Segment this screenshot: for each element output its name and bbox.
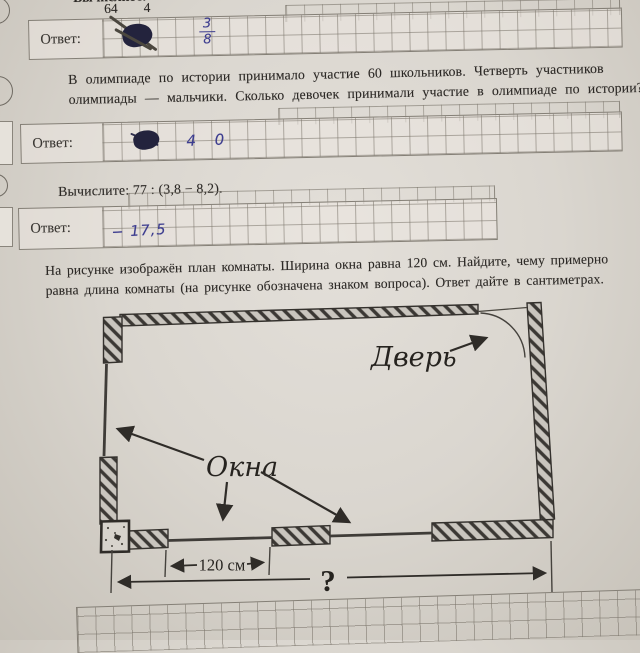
handwritten-fraction: 3 8 — [199, 16, 216, 47]
problem-number-circle — [0, 0, 10, 24]
door-label: Дверь — [370, 342, 457, 373]
dimension-arrow — [247, 563, 263, 565]
fraction-denominator: 8 — [203, 32, 212, 47]
top-left-pier — [104, 317, 123, 363]
top-wall — [120, 305, 478, 327]
window-arrow-right — [261, 472, 349, 522]
length-dimension-line — [347, 573, 545, 578]
bottom-wall-segment — [432, 520, 553, 542]
handwritten-answer: − 17,5 — [111, 222, 167, 241]
answer-grid-cells: 4 0 — [102, 112, 622, 161]
room-plan-diagram: Дверь Окна 120 см ? — [0, 300, 640, 640]
dimension-arrow — [172, 565, 197, 566]
right-wall — [527, 303, 555, 523]
extension-line — [111, 550, 112, 593]
problem-number-circle — [0, 76, 13, 106]
denominator-4: 4 — [143, 0, 150, 15]
extension-line — [165, 550, 166, 577]
left-window — [104, 364, 107, 456]
crossed-out-scribble — [118, 20, 155, 51]
bottom-window-2 — [330, 533, 432, 536]
room-length-question-mark: ? — [320, 563, 336, 598]
window-arrow-down — [223, 482, 227, 519]
cut-off-box — [0, 207, 13, 247]
problem-number-circle — [0, 174, 8, 197]
fraction-numerator: 3 — [199, 16, 215, 32]
handwritten-answer: 4 0 — [186, 130, 232, 150]
answer-strip-3: Ответ: − 17,5 — [18, 198, 498, 250]
answer-label: Ответ: — [29, 19, 103, 59]
answer-strip-2: Ответ: 4 0 — [20, 111, 623, 164]
door-opening-line — [478, 308, 527, 312]
door-swing-arc — [481, 313, 526, 358]
answer-label: Ответ: — [21, 123, 103, 163]
window-arrow-left — [118, 429, 204, 460]
lower-left-pier — [100, 457, 117, 524]
answer-label: Ответ: — [19, 207, 103, 249]
corner-column — [101, 521, 129, 552]
crossed-out-scribble — [131, 129, 161, 152]
window-width-label: 120 см — [199, 556, 246, 575]
denominator-64: 64 — [104, 1, 118, 16]
problem4-text: На рисунке изображён план комнаты. Ширин… — [45, 249, 609, 301]
cut-off-box — [0, 121, 13, 165]
bottom-window-1 — [168, 538, 272, 541]
answer-grid-cells: − 17,5 — [102, 199, 497, 247]
windows-label: Окна — [206, 452, 278, 483]
extension-line — [269, 547, 270, 575]
extension-line — [551, 541, 552, 592]
bottom-wall-segment — [272, 526, 330, 546]
bottom-wall-segment — [128, 529, 169, 549]
answer-grid-cells: 3 8 — [102, 9, 622, 58]
length-dimension-line — [119, 579, 310, 582]
worksheet-photo: { "p1": { "prompt_fragment": "Вычислите:… — [0, 0, 640, 640]
